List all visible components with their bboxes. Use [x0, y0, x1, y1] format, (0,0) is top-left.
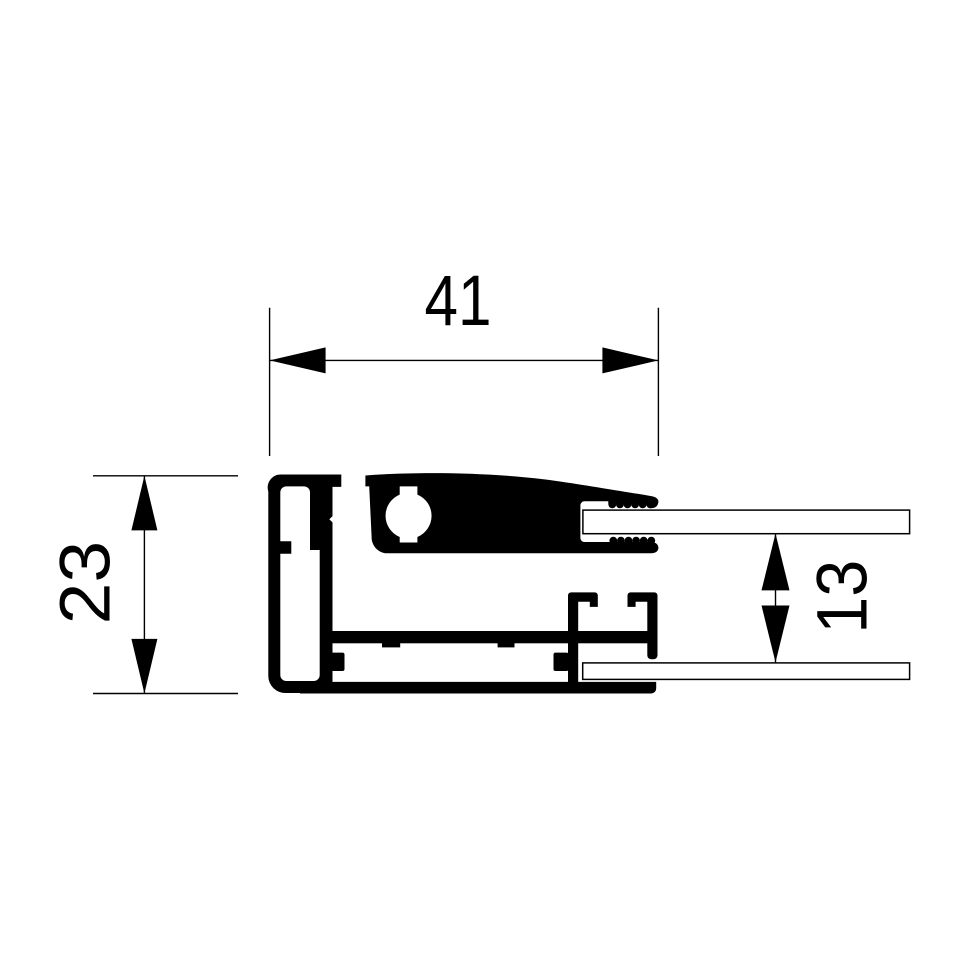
svg-text:41: 41 [425, 262, 492, 341]
svg-text:23: 23 [47, 541, 126, 625]
svg-text:13: 13 [804, 560, 883, 634]
